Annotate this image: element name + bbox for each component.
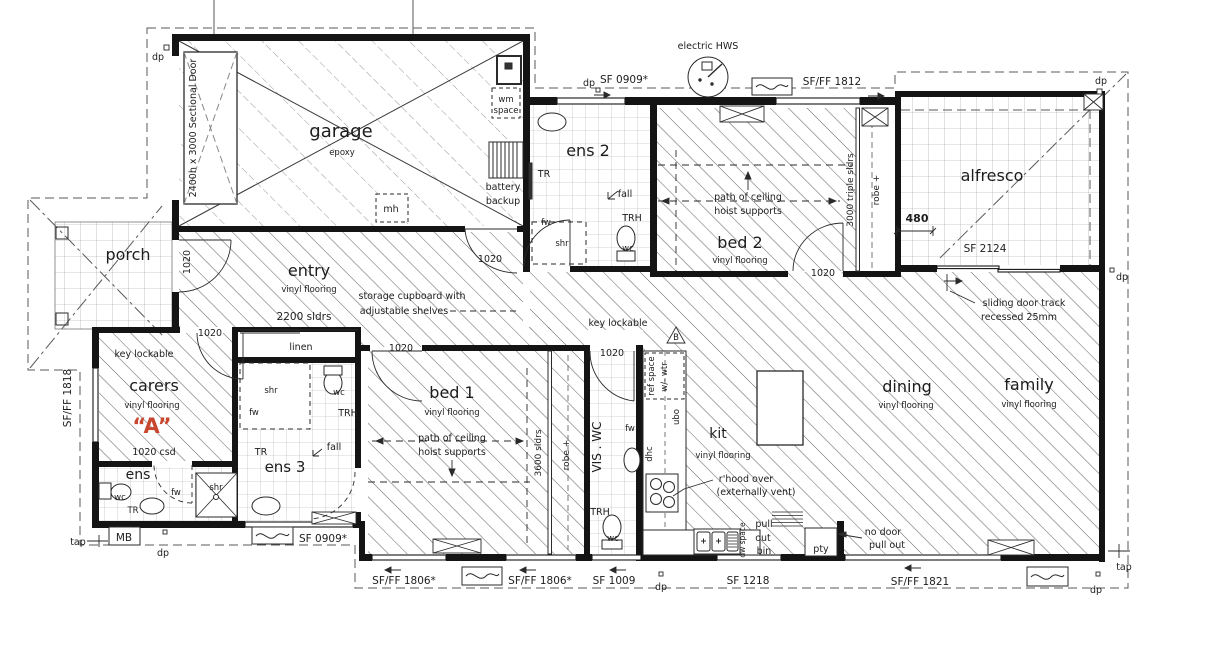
win-sf1009: SF 1009 bbox=[593, 575, 636, 587]
note-battery-1: battery bbox=[486, 182, 521, 193]
family-finish: vinyl flooring bbox=[1001, 400, 1056, 410]
bed2-finish: vinyl flooring bbox=[712, 256, 767, 266]
porch-floor bbox=[55, 222, 172, 329]
cooktop bbox=[646, 474, 678, 512]
note-hoist-bed1-1: path of ceiling bbox=[418, 433, 486, 444]
note-ref-2: w/- wtr bbox=[660, 362, 670, 392]
dp-top: dp bbox=[583, 78, 595, 89]
kit-finish: vinyl flooring bbox=[695, 451, 750, 461]
note-battery-2: backup bbox=[486, 196, 520, 207]
note-storage-1: storage cupboard with bbox=[359, 291, 466, 302]
note-hoist-bed2-1: path of ceiling bbox=[714, 192, 782, 203]
fw-viswc: fw bbox=[625, 424, 635, 434]
basin-ens3 bbox=[252, 497, 280, 515]
room-kit: kit bbox=[709, 426, 727, 442]
note-pull: pull bbox=[755, 519, 772, 530]
sectional-door-label: 2400h x 3000 Sectional Door bbox=[188, 59, 199, 198]
room-viswc: VIS . WC bbox=[590, 421, 604, 472]
dp-topright: dp bbox=[1095, 76, 1107, 87]
trh-ens2: TRH bbox=[621, 213, 642, 224]
kitchen-sink bbox=[694, 529, 740, 554]
note-dw: dw space bbox=[738, 522, 747, 558]
door-size-entry: 1020 bbox=[182, 250, 193, 274]
carers-finish: vinyl flooring bbox=[124, 401, 179, 411]
door-size-viswc: 1020 bbox=[600, 348, 624, 359]
hws-label: electric HWS bbox=[678, 41, 739, 52]
door-size-garage: 1020 bbox=[478, 254, 502, 265]
door-size-carers-cavity: 1020 csd bbox=[132, 447, 175, 458]
room-ens3: ens 3 bbox=[265, 458, 306, 476]
note-out: out bbox=[755, 533, 771, 544]
robe-label-bed2: robe + bbox=[872, 175, 882, 206]
note-slide-1: sliding door track bbox=[983, 298, 1066, 309]
shr-ens3: shr bbox=[264, 386, 278, 396]
floorplan-page: garage epoxy porch entry vinyl flooring … bbox=[0, 0, 1210, 646]
hws-unit bbox=[688, 57, 728, 97]
note-ubo: ubo bbox=[672, 409, 682, 425]
fall-ens2: fall bbox=[618, 189, 632, 200]
door-size-bed2: 1020 bbox=[811, 268, 835, 279]
tap-left-label: tap bbox=[70, 537, 86, 548]
note-hoist-bed2-2: hoist supports bbox=[714, 206, 782, 217]
living-floor bbox=[643, 330, 1099, 554]
win-sf1218: SF 1218 bbox=[727, 575, 770, 587]
note-key-hall: key lockable bbox=[589, 318, 648, 329]
trh-viswc: TRH bbox=[589, 507, 610, 518]
room-carers: carers bbox=[129, 376, 179, 395]
wc-ens2: wc bbox=[622, 244, 634, 254]
room-garage: garage bbox=[309, 121, 372, 142]
wc-ensA bbox=[99, 483, 111, 499]
entry-cupboard-doors: 2200 sldrs bbox=[277, 311, 332, 323]
tr-ens3: TR bbox=[254, 447, 268, 458]
fw-ensA: fw bbox=[171, 488, 181, 498]
fall-ens3: fall bbox=[327, 442, 341, 453]
room-dining: dining bbox=[882, 377, 931, 396]
win-sfff1812: SF/FF 1812 bbox=[803, 76, 861, 88]
island-bench bbox=[757, 371, 803, 445]
trh-ens3: TRH bbox=[337, 408, 358, 419]
note-rhood-1: r'hood over bbox=[719, 474, 773, 485]
dp-right: dp bbox=[1116, 272, 1128, 283]
dp-bottomright: dp bbox=[1090, 585, 1102, 596]
note-slide-2: recessed 25mm bbox=[981, 312, 1057, 323]
door-size-carers: 1020 bbox=[198, 328, 222, 339]
note-bin: bin bbox=[757, 546, 772, 557]
shr-ensA: shr bbox=[209, 483, 223, 493]
shower-ens3 bbox=[240, 363, 310, 429]
note-nodoor-1: no door bbox=[865, 527, 902, 538]
robe-bed2-track bbox=[856, 108, 872, 271]
win-sfff1806-a: SF/FF 1806* bbox=[372, 575, 436, 587]
tr-ens2: TR bbox=[537, 169, 551, 180]
fw-ens3: fw bbox=[249, 408, 259, 418]
room-entry: entry bbox=[288, 261, 330, 280]
battery-backup-unit bbox=[489, 142, 523, 178]
door-size-bed1: 1020 bbox=[389, 343, 413, 354]
wc-ensA: wc bbox=[114, 493, 126, 503]
robe-label-bed1: robe + bbox=[562, 440, 572, 471]
basin-ensA bbox=[140, 498, 164, 514]
room-ens2: ens 2 bbox=[566, 141, 610, 160]
wc-viswc: wc bbox=[607, 534, 619, 544]
room-linen: linen bbox=[289, 342, 312, 353]
note-wm-1: wm bbox=[498, 95, 513, 105]
room-porch: porch bbox=[105, 245, 150, 264]
dp-topleft: dp bbox=[152, 52, 164, 63]
dp-bottomleft: dp bbox=[157, 548, 169, 559]
room-bed2: bed 2 bbox=[717, 233, 762, 252]
robe-bed1-doors: 3600 sldrs bbox=[534, 429, 544, 476]
note-nodoor-2: pull out bbox=[869, 540, 905, 551]
room-ens: ens bbox=[126, 467, 151, 483]
win-sfff1818: SF/FF 1818 bbox=[62, 369, 74, 427]
tr-ensA: TR bbox=[126, 506, 138, 516]
hall-floor bbox=[530, 272, 901, 330]
mb-label: MB bbox=[116, 532, 132, 544]
room-pty: pty bbox=[813, 544, 829, 555]
note-rhood-2: (externally vent) bbox=[717, 487, 796, 498]
dim-480: 480 bbox=[906, 212, 929, 225]
floorplan-drawing: garage epoxy porch entry vinyl flooring … bbox=[0, 0, 1210, 646]
dining-finish: vinyl flooring bbox=[878, 401, 933, 411]
section-marker-label: B bbox=[673, 333, 679, 343]
room-family: family bbox=[1004, 375, 1053, 394]
wc-ens3: wc bbox=[333, 388, 345, 398]
note-storage-2: adjustable shelves bbox=[360, 306, 448, 317]
note-key-carers: key lockable bbox=[115, 349, 174, 360]
tap-symbol-right bbox=[1108, 544, 1130, 558]
win-sf0909-top: SF 0909* bbox=[600, 74, 648, 86]
note-ref-1: ref space bbox=[647, 356, 657, 395]
note-wm-2: space bbox=[494, 106, 519, 116]
shower-ensA bbox=[196, 473, 237, 517]
garage-finish: epoxy bbox=[329, 148, 355, 158]
room-bed1: bed 1 bbox=[429, 383, 474, 402]
basin-ens2 bbox=[538, 113, 566, 131]
shr-ens2: shr bbox=[555, 239, 569, 249]
win-sf0909-left: SF 0909* bbox=[299, 533, 347, 545]
note-dhc: dhc bbox=[645, 446, 655, 462]
note-mh: mh bbox=[383, 204, 398, 215]
entry-finish: vinyl flooring bbox=[281, 285, 336, 295]
basin-viswc bbox=[624, 448, 640, 472]
win-sf2124: SF 2124 bbox=[964, 243, 1007, 255]
tap-right-label: tap bbox=[1116, 562, 1132, 573]
win-sfff1806-b: SF/FF 1806* bbox=[508, 575, 572, 587]
room-alfresco: alfresco bbox=[961, 166, 1024, 185]
fw-ens2: fw bbox=[541, 218, 551, 228]
robe-bed2-doors: 3000 triple sldrs bbox=[846, 153, 856, 227]
unit-mark-A: “A” bbox=[132, 414, 171, 438]
dp-bottom: dp bbox=[655, 582, 667, 593]
win-sfff1821: SF/FF 1821 bbox=[891, 576, 949, 588]
bed1-finish: vinyl flooring bbox=[424, 408, 479, 418]
note-hoist-bed1-2: hoist supports bbox=[418, 447, 486, 458]
